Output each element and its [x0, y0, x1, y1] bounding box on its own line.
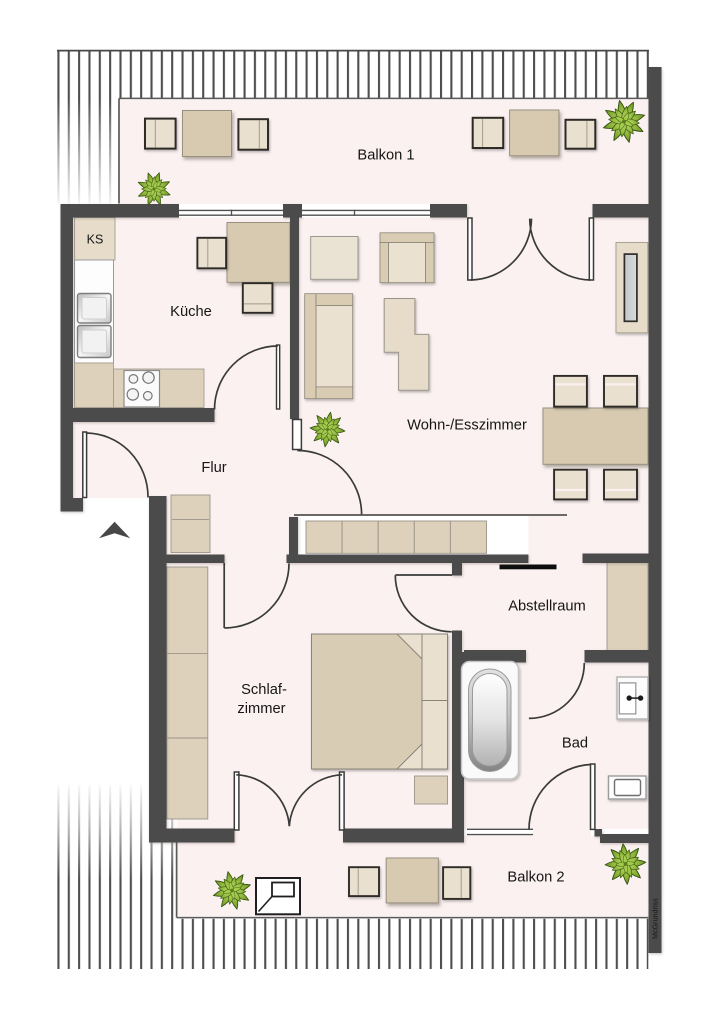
svg-text:Abstellraum: Abstellraum — [508, 599, 586, 615]
svg-text:Balkon 1: Balkon 1 — [357, 148, 414, 164]
svg-text:Schlaf-: Schlaf- — [241, 682, 287, 698]
svg-text:McGrundriss: McGrundriss — [651, 898, 660, 939]
svg-text:Wohn-/Esszimmer: Wohn-/Esszimmer — [407, 418, 527, 434]
svg-text:KS: KS — [87, 233, 104, 247]
svg-text:zimmer: zimmer — [237, 701, 285, 717]
svg-text:Balkon 2: Balkon 2 — [507, 870, 564, 886]
svg-text:Bad: Bad — [562, 736, 588, 752]
svg-text:Flur: Flur — [201, 460, 226, 476]
svg-text:Küche: Küche — [170, 304, 212, 320]
